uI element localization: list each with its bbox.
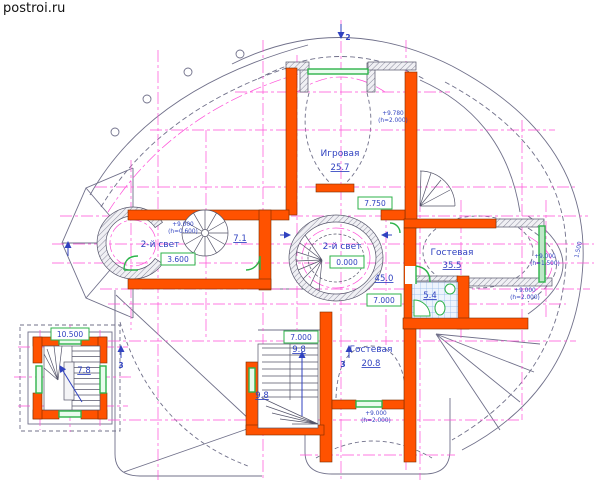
elevation-east: 7.000 [367, 294, 401, 306]
area-gostevaya-south: 20.8 [362, 359, 381, 369]
elevation-stair-value: 7.000 [290, 333, 312, 342]
elevation-west-hall: 3.600 [161, 253, 195, 265]
section-mark-top: 2 [345, 33, 350, 42]
elevation-east-value: 7.000 [373, 296, 395, 305]
window-tower-left [36, 366, 42, 393]
area-stair-main: 9.8 [292, 345, 306, 355]
section-mark-south: 3 [340, 360, 345, 369]
window-stair-west [249, 368, 255, 392]
label-svet-west: 2-й свет [141, 240, 180, 250]
toilet [435, 301, 445, 315]
main-stair [258, 344, 318, 428]
elevation-center-value: 0.000 [336, 258, 358, 267]
window-south [356, 401, 382, 407]
height-bay-2: (h=1.500) [530, 261, 560, 267]
sink [445, 284, 455, 294]
area-svet-center: 45.0 [375, 274, 394, 284]
elevation-stair: 7.000 [284, 331, 318, 343]
ne-winder-stair [420, 171, 455, 206]
height-bay2-2: (h=2.000) [510, 295, 540, 301]
door-oval-ne [390, 223, 400, 233]
height-south-1: +9.000 [365, 411, 387, 417]
area-stair-lower: 9.8 [255, 391, 269, 401]
height-igrovaya-2: (h=2.000) [378, 118, 408, 124]
floor-plan-page: 0.000 3.600 7.000 7.000 7.750 10.500 Игр… [0, 0, 600, 491]
window-north-balcony [308, 69, 368, 74]
height-bay2-1: +9.000 [514, 288, 536, 294]
area-bathroom: 5.4 [423, 291, 437, 301]
elevation-north-value: 7.750 [364, 199, 386, 208]
elevation-west-hall-value: 3.600 [167, 255, 189, 264]
label-svet-center: 2-й свет [323, 242, 362, 252]
watermark: postroi.ru [3, 1, 65, 16]
label-igrovaya: Игровая [321, 149, 360, 159]
radius-annotation: 1.500 [574, 241, 583, 259]
floor-plan-drawing: 0.000 3.600 7.000 7.000 7.750 10.500 Игр… [0, 0, 600, 491]
area-igrovaya: 25.7 [331, 163, 350, 173]
label-gostevaya-south: Гостевая [350, 345, 393, 355]
area-hall: 7.1 [233, 234, 247, 244]
area-gostevaya-east: 35.5 [443, 261, 462, 271]
section-mark-tower: 3 [118, 361, 123, 370]
height-south-2: (h=2.000) [361, 418, 391, 424]
elevation-tower-value: 10.500 [57, 330, 83, 339]
window-tower-bottom [59, 411, 81, 417]
elevation-north: 7.750 [358, 197, 392, 209]
height-spiral-2: (h=0.600) [168, 229, 198, 235]
height-spiral-1: +9.000 [172, 222, 194, 228]
elevation-center: 0.000 [330, 256, 364, 268]
height-igrovaya-1: +9.780 [382, 111, 404, 117]
section-marks: 2 3 3 [118, 33, 350, 370]
tower-stair [44, 346, 100, 410]
window-tower-right [100, 366, 106, 393]
elevation-tower: 10.500 [51, 328, 89, 340]
area-tower-stair: 7.8 [77, 366, 91, 376]
height-bay-1: +9.000 [534, 254, 556, 260]
label-gostevaya-east: Гостевая [431, 248, 474, 258]
